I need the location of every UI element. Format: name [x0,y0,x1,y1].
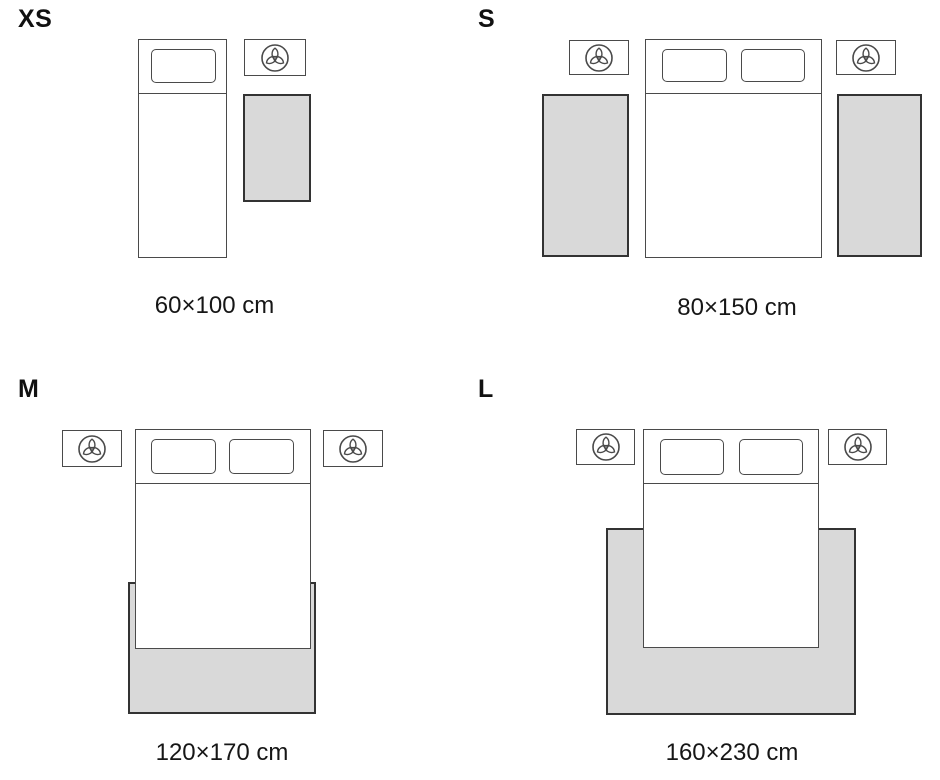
size-label-s: S [478,6,495,34]
trefoil-plant-icon [76,433,108,465]
trefoil-plant-icon [590,431,622,463]
nightstand-left [576,429,635,465]
pillow [151,49,216,83]
double-bed [643,429,819,648]
size-dimensions-xs: 60×100 cm [104,292,325,320]
trefoil-plant-icon [259,42,291,74]
bed-headboard [644,430,818,484]
pillow-right [229,439,294,474]
size-label-m: M [18,376,39,404]
rug-s-left [542,94,629,257]
rug-xs [243,94,311,202]
pillow-left [662,49,727,82]
rug-size-guide-diagram: XS 60×100 cm S 80×150 cm [0,0,940,780]
double-bed [135,429,311,649]
pillow-left [151,439,216,474]
trefoil-plant-icon [583,42,615,74]
bed-headboard [136,430,310,484]
nightstand-right [828,429,887,465]
pillow-right [741,49,805,82]
size-label-l: L [478,376,494,404]
nightstand-left [569,40,629,75]
rug-s-right [837,94,922,257]
single-bed [138,39,227,258]
pillow-left [660,439,724,475]
size-label-xs: XS [18,6,52,34]
trefoil-plant-icon [337,433,369,465]
nightstand-left [62,430,122,467]
nightstand-right [836,40,896,75]
size-dimensions-l: 160×230 cm [622,739,842,767]
trefoil-plant-icon [850,42,882,74]
trefoil-plant-icon [842,431,874,463]
nightstand-right [323,430,383,467]
nightstand [244,39,306,76]
size-dimensions-m: 120×170 cm [112,739,332,767]
double-bed [645,39,822,258]
bed-headboard [139,40,226,94]
pillow-right [739,439,803,475]
bed-headboard [646,40,821,94]
size-dimensions-s: 80×150 cm [627,294,847,322]
